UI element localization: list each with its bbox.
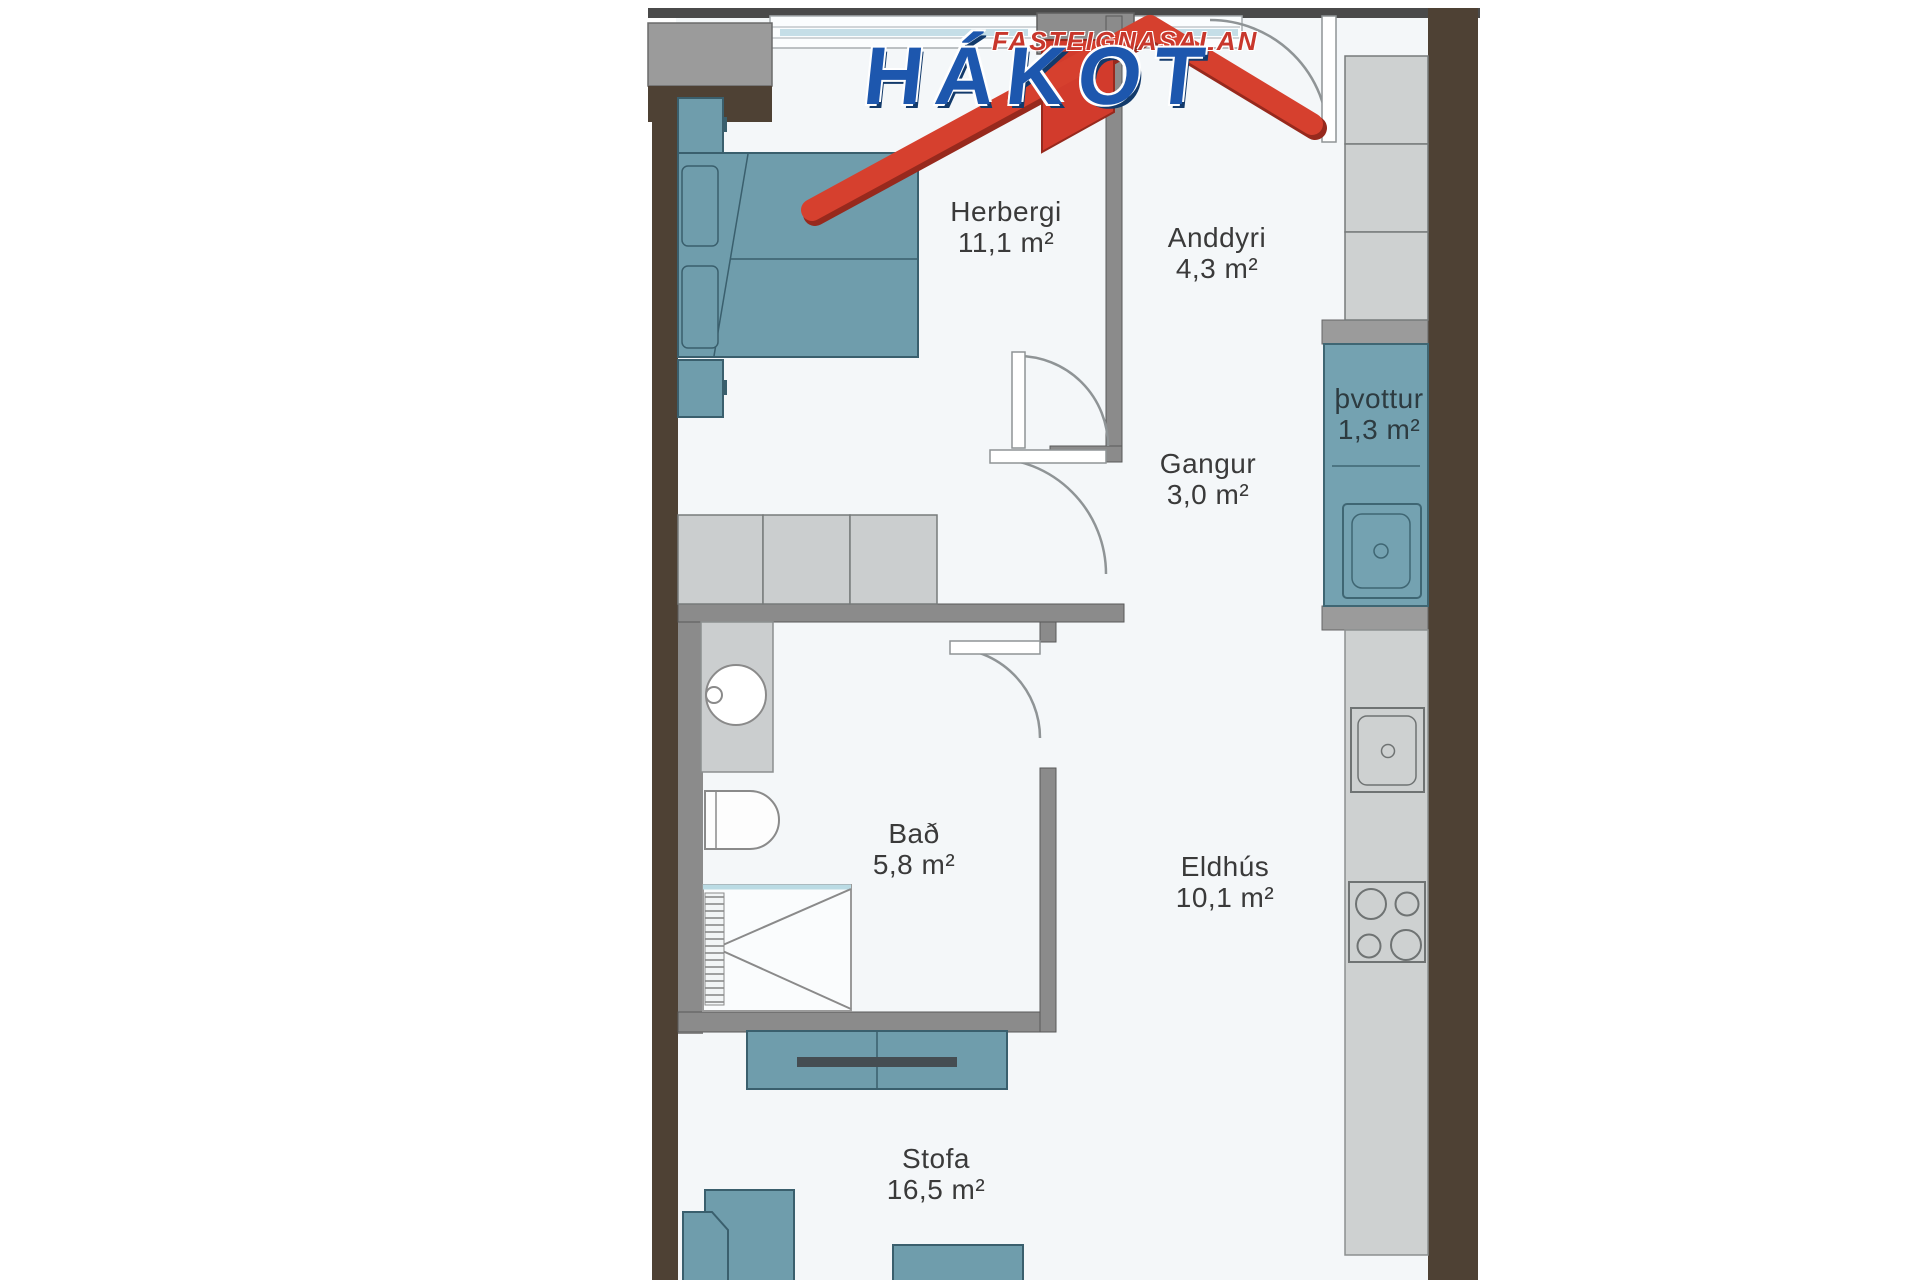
room-label-bad: Bað 5,8 m²: [873, 818, 955, 880]
shower-drain-grate: [705, 893, 724, 1005]
room-area: 3,0 m²: [1160, 479, 1256, 510]
room-area: 5,8 m²: [873, 849, 955, 880]
room-area: 4,3 m²: [1168, 253, 1266, 284]
kitchen-sink: [1351, 708, 1424, 792]
toilet: [705, 791, 779, 849]
room-label-anddyri: Anddyri 4,3 m²: [1168, 222, 1266, 284]
room-name: þvottur: [1334, 383, 1423, 414]
floor-plan-drawing: [0, 0, 1920, 1280]
room-name: Gangur: [1160, 448, 1256, 479]
floor-plan-page: FASTEIGNASALAN HÁKOT Herbergi 11,1 m² An…: [0, 0, 1920, 1280]
pillow: [682, 166, 718, 246]
room-label-thvottur: þvottur 1,3 m²: [1334, 383, 1423, 445]
washing-machine: [1343, 504, 1421, 598]
room-name: Bað: [873, 818, 955, 849]
room-name: Herbergi: [950, 196, 1061, 227]
vanity-sink: [701, 622, 773, 772]
wardrobe: [678, 515, 937, 604]
room-name: Eldhús: [1176, 851, 1274, 882]
logo-brand-name: HÁKOT: [860, 36, 1220, 118]
room-label-stofa: Stofa 16,5 m²: [887, 1143, 985, 1205]
stove: [1349, 882, 1425, 962]
pillow: [682, 266, 718, 348]
kitchen-cabinets: [1345, 56, 1428, 320]
room-name: Stofa: [887, 1143, 985, 1174]
room-label-gangur: Gangur 3,0 m²: [1160, 448, 1256, 510]
room-area: 1,3 m²: [1334, 414, 1423, 445]
coffee-table: [893, 1245, 1023, 1280]
nightstand: [678, 360, 723, 417]
room-label-eldhus: Eldhús 10,1 m²: [1176, 851, 1274, 913]
room-label-herbergi: Herbergi 11,1 m²: [950, 196, 1061, 258]
shower: [703, 885, 851, 1011]
room-area: 10,1 m²: [1176, 882, 1274, 913]
room-area: 16,5 m²: [887, 1174, 985, 1205]
room-name: Anddyri: [1168, 222, 1266, 253]
room-area: 11,1 m²: [950, 227, 1061, 258]
tv-unit: [747, 1031, 1007, 1089]
nightstand: [678, 98, 723, 153]
neighbor-wall-block: [648, 23, 772, 86]
tv: [797, 1057, 957, 1067]
